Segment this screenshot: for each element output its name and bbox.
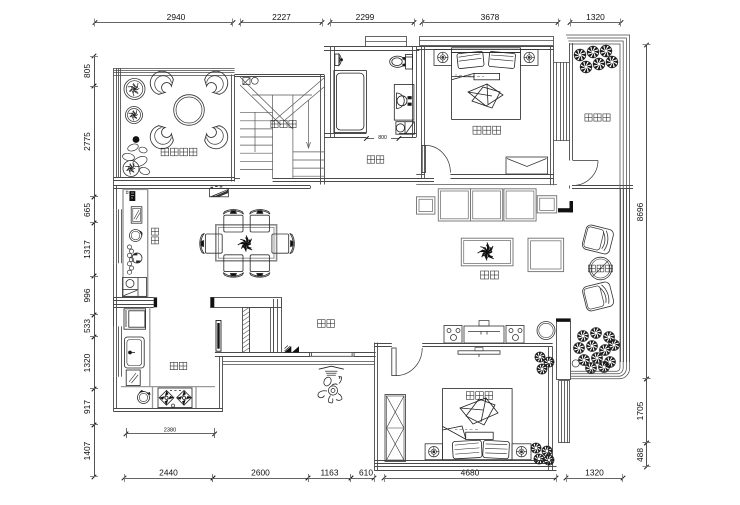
- svg-text:917: 917: [82, 400, 92, 414]
- svg-text:2775: 2775: [82, 132, 92, 151]
- svg-text:1320: 1320: [82, 353, 92, 372]
- svg-text:488: 488: [635, 448, 645, 462]
- svg-text:533: 533: [82, 319, 92, 333]
- svg-text:2227: 2227: [272, 12, 291, 22]
- svg-text:8696: 8696: [635, 202, 645, 221]
- svg-text:665: 665: [82, 203, 92, 217]
- svg-text:1705: 1705: [635, 401, 645, 420]
- svg-text:610: 610: [359, 468, 373, 478]
- svg-text:1163: 1163: [320, 468, 338, 478]
- svg-text:2380: 2380: [164, 428, 176, 434]
- svg-text:1407: 1407: [82, 441, 92, 460]
- svg-text:996: 996: [82, 288, 92, 302]
- svg-text:2600: 2600: [251, 468, 270, 478]
- svg-text:2299: 2299: [356, 12, 375, 22]
- svg-text:4680: 4680: [461, 468, 480, 478]
- svg-text:800: 800: [378, 135, 387, 141]
- svg-text:1317: 1317: [82, 240, 92, 259]
- svg-text:805: 805: [82, 64, 92, 78]
- svg-text:1320: 1320: [586, 12, 605, 22]
- svg-text:2440: 2440: [159, 468, 178, 478]
- svg-text:1320: 1320: [585, 468, 604, 478]
- svg-text:2940: 2940: [167, 12, 186, 22]
- svg-text:3678: 3678: [481, 12, 500, 22]
